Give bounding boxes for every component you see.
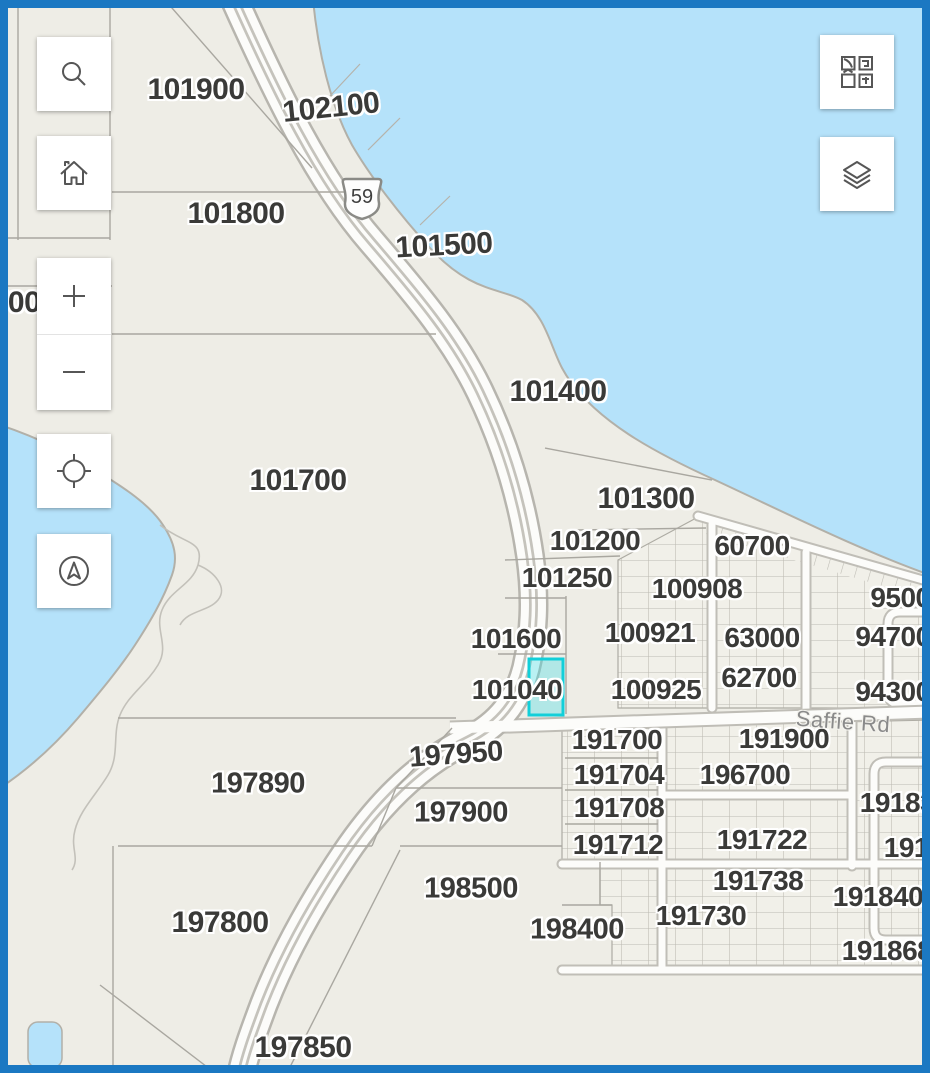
route-shield: 59: [338, 175, 386, 223]
plus-icon: [59, 281, 89, 311]
home-button[interactable]: [37, 136, 111, 210]
compass-button[interactable]: [37, 534, 111, 608]
zoom-out-button[interactable]: [37, 335, 111, 411]
selected-parcel-highlight[interactable]: [529, 659, 563, 715]
search-icon: [57, 57, 91, 91]
compass-icon: [54, 551, 94, 591]
locate-button[interactable]: [37, 434, 111, 508]
minus-icon: [59, 357, 89, 387]
layers-icon: [836, 153, 878, 195]
basemap-grid-icon: [837, 52, 877, 92]
layers-button[interactable]: [820, 137, 894, 211]
pond: [28, 1022, 62, 1068]
basemap-gallery-button[interactable]: [820, 35, 894, 109]
home-icon: [56, 155, 92, 191]
search-button[interactable]: [37, 37, 111, 111]
map-canvas[interactable]: 1019001021001018001015001014007001017001…: [0, 0, 930, 1073]
route-number: 59: [351, 186, 373, 209]
locate-icon: [54, 451, 94, 491]
basemap: [0, 0, 930, 1073]
zoom-in-button[interactable]: [37, 258, 111, 334]
zoom-control: [37, 258, 111, 410]
